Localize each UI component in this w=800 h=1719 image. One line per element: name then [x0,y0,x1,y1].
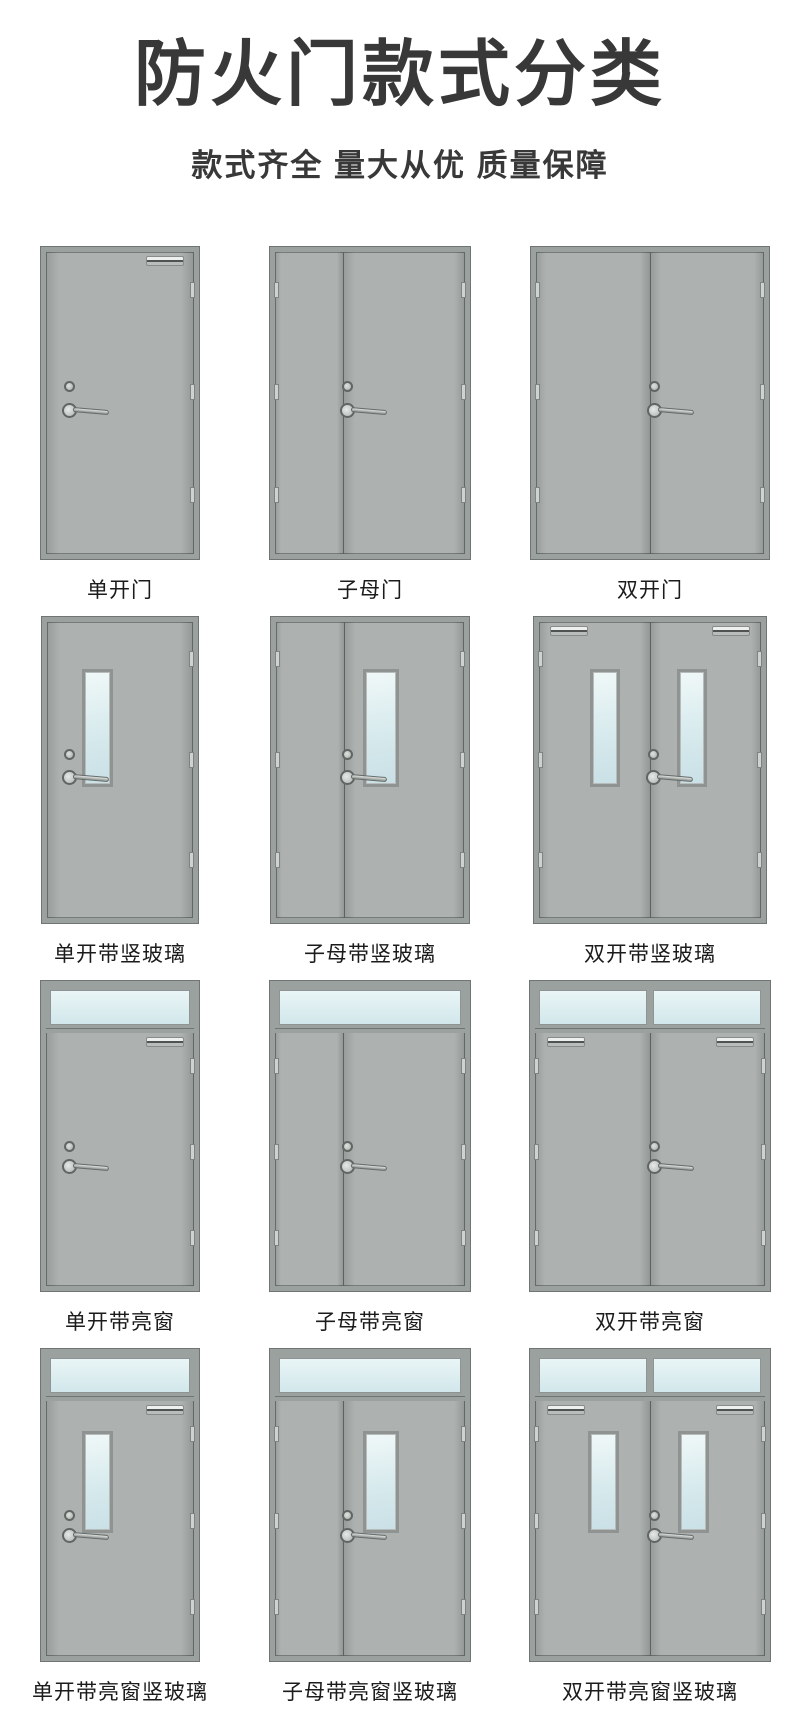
hinge-icon [461,1230,466,1246]
transom-window [46,986,194,1033]
hinge-icon [274,1230,279,1246]
hinge-icon [190,1144,195,1160]
door-body [275,1401,465,1656]
door-body [275,1033,465,1286]
door-row: 单开带竖玻璃子母带竖玻璃双开带竖玻璃 [0,617,800,968]
hinge-icon [761,1144,766,1160]
door-closer-icon [712,626,750,636]
door-leaf-right [343,252,465,554]
door-cell: 单开带竖玻璃 [0,617,240,968]
hinge-icon [534,1599,539,1615]
door-closer-icon [146,1037,184,1047]
door-label: 子母带亮窗 [315,1306,425,1336]
hinge-icon [761,1513,766,1529]
hinge-icon [534,1426,539,1442]
hinge-icon [534,1513,539,1529]
fire-door-infographic: 防火门款式分类 款式齐全 量大从优 质量保障 单开门子母门双开门单开带竖玻璃子母… [0,0,800,1706]
door-label: 双开门 [617,574,683,604]
hinge-icon [761,1230,766,1246]
door-body [46,1033,194,1286]
header: 防火门款式分类 款式齐全 量大从优 质量保障 [0,0,800,185]
transom-window [535,986,765,1033]
hinge-icon [535,384,540,400]
hinge-icon [189,852,194,868]
hinge-icon [760,384,765,400]
hinge-icon [538,651,543,667]
hinge-icon [274,1426,279,1442]
transom-glass-pane [653,1358,761,1393]
door-body [46,1401,194,1656]
door-body [275,252,465,554]
hinge-icon [461,1513,466,1529]
door-leaf-right [344,622,464,918]
hinge-icon [461,1058,466,1074]
door-label: 单开带竖玻璃 [54,938,186,968]
hinge-icon [761,1426,766,1442]
lock-icon [649,381,660,392]
hinge-icon [757,752,762,768]
hinge-icon [190,1513,195,1529]
door-cell: 子母带亮窗 [240,981,500,1336]
door-label: 单开带亮窗竖玻璃 [32,1676,208,1706]
door-single-glass [42,617,198,923]
hinge-icon [761,1599,766,1615]
door-closer-icon [547,1037,585,1047]
hinge-icon [461,1144,466,1160]
door-label: 双开带亮窗竖玻璃 [562,1676,738,1706]
vertical-glass-pane [677,669,707,787]
vertical-glass-pane [82,1431,113,1533]
door-label: 子母带亮窗竖玻璃 [282,1676,458,1706]
door-body [535,1401,765,1656]
hinge-icon [189,651,194,667]
hinge-icon [461,487,466,503]
vertical-glass-pane [363,669,399,787]
door-row: 单开带亮窗子母带亮窗双开带亮窗 [0,981,800,1336]
hinge-icon [190,384,195,400]
transom-glass-pane [279,1358,461,1393]
hinge-icon [534,1058,539,1074]
door-cell: 双开门 [500,247,800,604]
hinge-icon [757,651,762,667]
hinge-icon [535,282,540,298]
lock-icon [64,1141,75,1152]
transom-window [275,986,465,1033]
hinge-icon [274,282,279,298]
vertical-glass-pane [82,669,113,787]
door-cell: 双开带竖玻璃 [500,617,800,968]
hinge-icon [190,1599,195,1615]
door-closer-icon [716,1405,754,1415]
door-closer-icon [716,1037,754,1047]
door-leaf-left [536,252,650,554]
door-closer-icon [146,1405,184,1415]
door-cell: 双开带亮窗竖玻璃 [500,1349,800,1706]
door-leaf-left [275,1033,343,1286]
hinge-icon [460,852,465,868]
door-mu-transom-glass [270,1349,470,1661]
hinge-icon [761,1058,766,1074]
door-label: 单开门 [87,574,153,604]
door-closer-icon [547,1405,585,1415]
door-closer-icon [146,256,184,266]
door-label: 双开带竖玻璃 [584,938,716,968]
hinge-icon [275,852,280,868]
door-row: 单开带亮窗竖玻璃子母带亮窗竖玻璃双开带亮窗竖玻璃 [0,1349,800,1706]
vertical-glass-pane [678,1431,709,1533]
hinge-icon [760,282,765,298]
hinge-icon [534,1144,539,1160]
hinge-icon [189,752,194,768]
hinge-icon [190,282,195,298]
hinge-icon [461,1426,466,1442]
door-body [47,622,193,918]
hinge-icon [538,752,543,768]
transom-glass-pane [279,990,461,1025]
hinge-icon [274,1513,279,1529]
lock-icon [649,1141,660,1152]
door-leaf-left [275,252,343,554]
door-body [46,252,194,554]
vertical-glass-pane [363,1431,399,1533]
door-single [41,247,199,559]
hinge-icon [274,487,279,503]
page-subtitle: 款式齐全 量大从优 质量保障 [0,140,800,185]
transom-window [535,1354,765,1401]
door-double-transom [530,981,770,1291]
door-label: 子母带竖玻璃 [304,938,436,968]
door-cell: 子母门 [240,247,500,604]
vertical-glass-pane [588,1431,619,1533]
door-body [276,622,464,918]
door-leaf-right [650,252,764,554]
door-mu [270,247,470,559]
door-cell: 子母带亮窗竖玻璃 [240,1349,500,1706]
door-cell: 子母带竖玻璃 [240,617,500,968]
transom-glass-pane [50,990,190,1025]
hinge-icon [275,752,280,768]
hinge-icon [275,651,280,667]
door-row: 单开门子母门双开门 [0,247,800,604]
hinge-icon [757,852,762,868]
hinge-icon [534,1230,539,1246]
transom-window [275,1354,465,1401]
door-cell: 单开带亮窗竖玻璃 [0,1349,240,1706]
door-closer-icon [550,626,588,636]
door-leaf-left [535,1033,650,1286]
door-label: 双开带亮窗 [595,1306,705,1336]
door-leaf-right [343,1401,465,1656]
hinge-icon [461,282,466,298]
door-cell: 单开带亮窗 [0,981,240,1336]
door-cell: 单开门 [0,247,240,604]
lock-icon [649,1510,660,1521]
door-label: 单开带亮窗 [65,1306,175,1336]
hinge-icon [461,384,466,400]
hinge-icon [538,852,543,868]
hinge-icon [190,1230,195,1246]
door-single-transom-glass [41,1349,199,1661]
page-title: 防火门款式分类 [0,38,800,114]
door-body [539,622,761,918]
transom-glass-pane [539,990,647,1025]
door-double [531,247,769,559]
door-body [536,252,764,554]
door-label: 子母门 [337,574,403,604]
transom-glass-pane [539,1358,647,1393]
vertical-glass-pane [590,669,620,787]
door-leaf-left [276,622,344,918]
hinge-icon [460,752,465,768]
hinge-icon [535,487,540,503]
door-double-glass [534,617,766,923]
door-single-transom [41,981,199,1291]
hinge-icon [190,1058,195,1074]
door-mu-glass [271,617,469,923]
hinge-icon [274,1599,279,1615]
hinge-icon [190,1426,195,1442]
door-double-transom-glass [530,1349,770,1661]
door-mu-transom [270,981,470,1291]
hinge-icon [190,487,195,503]
hinge-icon [760,487,765,503]
lock-icon [64,1510,75,1521]
transom-glass-pane [653,990,761,1025]
hinge-icon [460,651,465,667]
door-leaf-right [343,1033,465,1286]
transom-window [46,1354,194,1401]
hinge-icon [461,1599,466,1615]
door-leaf-left [275,1401,343,1656]
door-leaf-right [650,1033,765,1286]
transom-glass-pane [50,1358,190,1393]
door-body [535,1033,765,1286]
hinge-icon [274,1144,279,1160]
door-cell: 双开带亮窗 [500,981,800,1336]
hinge-icon [274,384,279,400]
door-grid: 单开门子母门双开门单开带竖玻璃子母带竖玻璃双开带竖玻璃单开带亮窗子母带亮窗双开带… [0,247,800,1706]
hinge-icon [274,1058,279,1074]
